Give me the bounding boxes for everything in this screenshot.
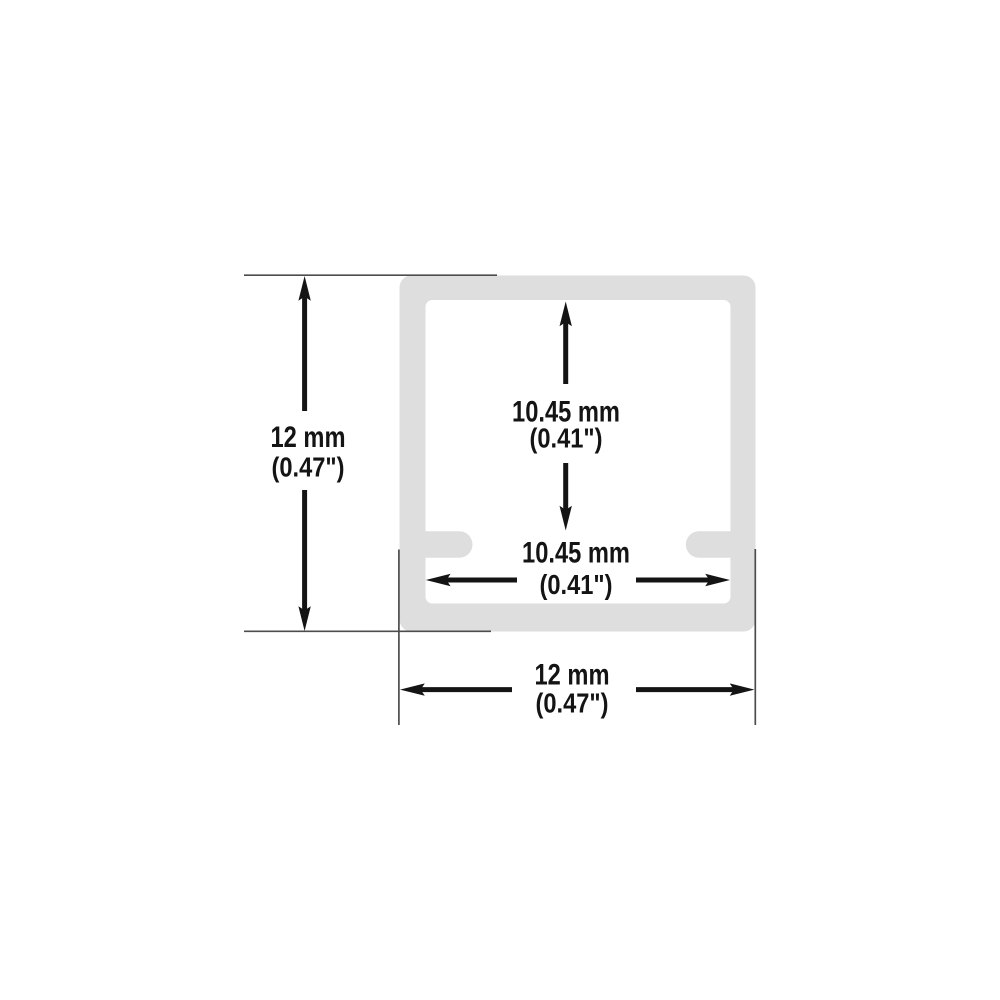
svg-text:(0.47"): (0.47") (536, 689, 609, 719)
svg-text:12 mm: 12 mm (270, 420, 345, 453)
svg-text:(0.41"): (0.41") (540, 570, 613, 600)
svg-text:10.45 mm: 10.45 mm (522, 536, 630, 569)
svg-text:(0.41"): (0.41") (530, 424, 603, 454)
svg-text:12 mm: 12 mm (534, 658, 609, 691)
svg-text:(0.47"): (0.47") (272, 453, 345, 483)
